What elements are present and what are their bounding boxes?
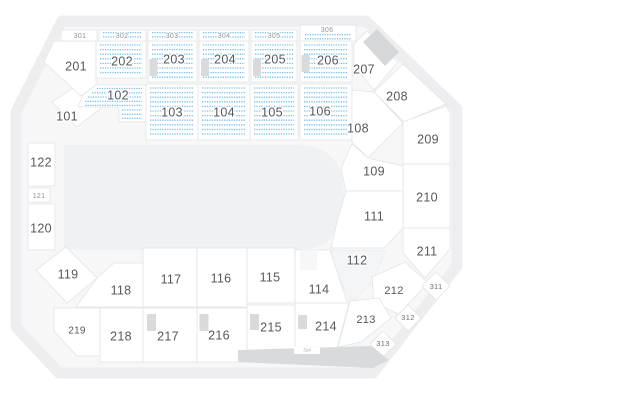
seat-map-canvas: 1011021031041051061081091111121141151161…	[0, 0, 640, 401]
section-217-label: 217	[157, 329, 179, 343]
tunnel-entrance-icon	[147, 314, 156, 331]
section-116[interactable]: 116	[197, 248, 247, 307]
section-104-label: 104	[213, 105, 235, 119]
section-109-label: 109	[363, 164, 385, 178]
section-304-label: 304	[218, 33, 231, 40]
section-209-label: 209	[417, 132, 439, 146]
section-205[interactable]: 205	[251, 41, 297, 82]
section-210-label: 210	[416, 190, 438, 204]
section-305-label: 305	[268, 33, 281, 40]
tunnel-entrance-icon	[302, 55, 310, 72]
section-207-label: 207	[353, 62, 375, 76]
arena-seat-map: 1011021031041051061081091111121141151161…	[0, 0, 640, 401]
section-114-label: 114	[309, 282, 330, 296]
section-215[interactable]: 215	[247, 305, 295, 351]
tunnel-entrance-icon	[298, 315, 307, 329]
section-122-label: 122	[30, 155, 52, 169]
section-106[interactable]: 106	[300, 84, 352, 140]
section-203[interactable]: 203	[148, 41, 197, 82]
tunnel-entrance-icon	[150, 59, 158, 76]
section-302[interactable]: 302	[99, 30, 146, 41]
section-202[interactable]: 202	[96, 41, 146, 78]
section-111-label: 111	[364, 209, 384, 223]
section-115[interactable]: 115	[247, 248, 295, 303]
section-106-label: 106	[309, 104, 331, 118]
section-117[interactable]: 117	[143, 248, 197, 307]
section-219-label: 219	[68, 326, 86, 337]
section-104[interactable]: 104	[198, 84, 250, 140]
section-204-label: 204	[214, 52, 236, 66]
tunnel-entrance-icon	[253, 59, 261, 76]
section-218-label: 218	[110, 329, 132, 343]
tunnel-notch	[300, 250, 317, 270]
section-302-label: 302	[116, 33, 129, 40]
section-112-label: 112	[347, 253, 368, 267]
section-119-label: 119	[58, 267, 79, 281]
section-116-label: 116	[211, 271, 232, 285]
section-203-label: 203	[163, 52, 185, 66]
section-216-label: 216	[208, 328, 230, 342]
section-101-label: 101	[56, 109, 78, 123]
section-121[interactable]: 121	[28, 188, 50, 202]
section-103[interactable]: 103	[146, 84, 198, 140]
tunnel-entrance-icon	[250, 314, 259, 330]
section-210[interactable]: 210	[403, 164, 450, 228]
section-108-label: 108	[347, 121, 369, 135]
section-306-label: 306	[321, 27, 334, 34]
section-303[interactable]: 303	[148, 30, 197, 41]
section-217[interactable]: 217	[143, 308, 197, 362]
section-204[interactable]: 204	[199, 41, 249, 82]
section-305[interactable]: 305	[251, 30, 297, 41]
section-213-label: 213	[356, 314, 375, 326]
section-206-label: 206	[317, 53, 339, 67]
section-117-label: 117	[161, 272, 182, 286]
section-105[interactable]: 105	[250, 84, 298, 140]
section-304[interactable]: 304	[199, 30, 249, 41]
section-306[interactable]: 306	[300, 25, 356, 41]
section-115-label: 115	[260, 270, 281, 284]
section-208-label: 208	[386, 89, 408, 103]
section-205-label: 205	[264, 52, 286, 66]
section-314[interactable]: 314	[294, 347, 320, 354]
section-301-label: 301	[74, 33, 87, 40]
section-314-label: 314	[303, 348, 311, 353]
section-103-label: 103	[161, 105, 183, 119]
section-301[interactable]: 301	[61, 30, 97, 41]
section-211-label: 211	[417, 244, 438, 258]
section-311-label: 311	[430, 282, 443, 291]
section-212-label: 212	[384, 285, 403, 297]
section-105-label: 105	[261, 105, 283, 119]
section-201-label: 201	[65, 59, 87, 73]
section-206[interactable]: 206	[300, 41, 352, 82]
section-120-label: 120	[30, 221, 52, 235]
section-303-label: 303	[166, 33, 179, 40]
section-214-label: 214	[315, 319, 337, 333]
section-313-label: 313	[376, 339, 389, 348]
section-202-label: 202	[111, 54, 133, 68]
section-312-label: 312	[401, 313, 414, 322]
section-121-label: 121	[33, 193, 46, 200]
section-215-label: 215	[260, 320, 282, 334]
tunnel-entrance-icon	[201, 59, 209, 76]
section-122[interactable]: 122	[28, 143, 55, 186]
section-218[interactable]: 218	[100, 308, 143, 362]
event-floor	[64, 145, 344, 250]
section-102-label: 102	[107, 88, 129, 102]
section-118-label: 118	[111, 283, 132, 297]
section-120[interactable]: 120	[28, 204, 55, 250]
